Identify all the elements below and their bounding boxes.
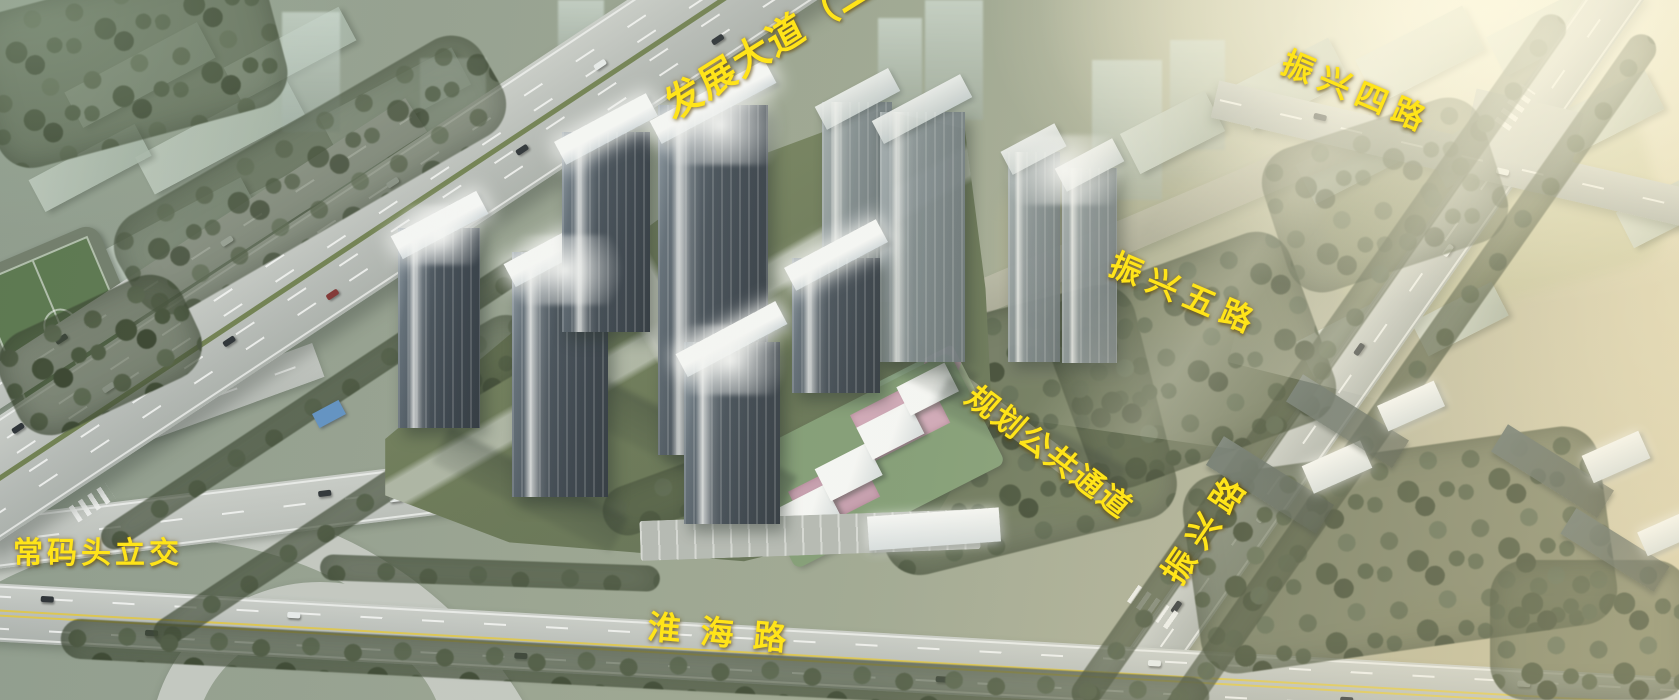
roof-glare — [655, 325, 805, 395]
neighbor-tower — [880, 112, 965, 362]
residential-tower — [792, 258, 880, 393]
roof-glare — [985, 135, 1145, 205]
label-changmatou-interchange: 常码头立交 — [13, 528, 183, 572]
aerial-site-rendering: 发展大道（二 振兴四路 振兴五路 规划公共通道 振兴路 常码头立交 淮海路 — [0, 0, 1679, 700]
roof-glare — [490, 235, 640, 305]
neighbor-tower-roof — [1582, 431, 1651, 484]
roof-glare — [380, 205, 500, 265]
